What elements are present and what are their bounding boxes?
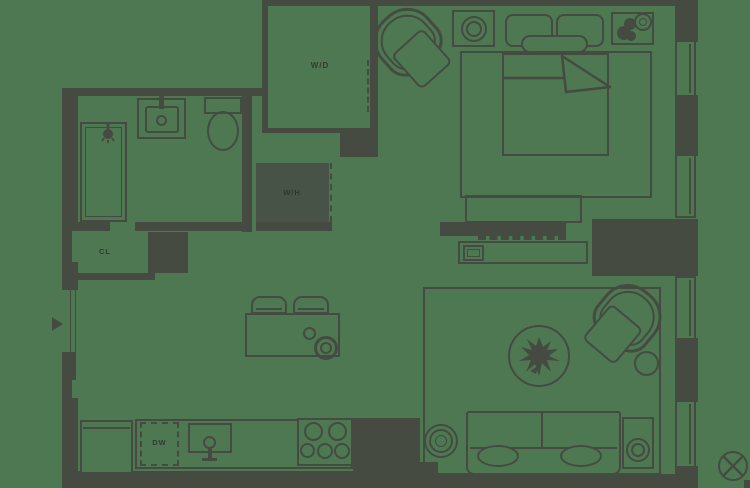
- wall: [62, 96, 78, 222]
- wall-corner-block: [340, 133, 378, 157]
- sink-faucet-icon: [159, 96, 164, 109]
- sofa-center-seam: [541, 413, 543, 447]
- table-lamp-inner-ring: [631, 443, 645, 457]
- bed-sheet-fold-icon: [500, 51, 612, 97]
- sofa-throw-pillow: [560, 445, 602, 467]
- door-opening-dashes: [367, 60, 369, 112]
- wall: [135, 222, 252, 231]
- table-lamp-inner-ring: [639, 18, 647, 26]
- window: [675, 400, 696, 468]
- dishwasher-label: DW: [142, 437, 177, 449]
- entry-arrow-icon: [52, 317, 63, 331]
- sink-drain: [156, 115, 167, 126]
- wall: [256, 222, 332, 231]
- wall: [675, 338, 698, 402]
- circled-x-lines: [718, 451, 748, 481]
- water-heater-dashed-edge: [330, 163, 332, 222]
- window: [675, 40, 696, 97]
- water-heater-label: W/H: [266, 187, 318, 199]
- window: [675, 154, 696, 218]
- burner-icon: [328, 422, 347, 441]
- wall-block: [148, 232, 188, 273]
- wall: [62, 398, 78, 474]
- tv-stand-dashes: [478, 236, 566, 240]
- faucet-base: [202, 458, 217, 461]
- wall: [62, 273, 155, 280]
- refrigerator-door-line: [83, 427, 130, 429]
- burner-icon: [317, 443, 333, 459]
- tv-icon: [440, 222, 566, 236]
- toilet-bowl: [207, 111, 239, 151]
- wall: [62, 222, 110, 231]
- wall: [62, 88, 268, 96]
- bar-stool: [293, 296, 329, 314]
- entry-door-leaf: [70, 290, 76, 352]
- burner-icon: [304, 422, 323, 441]
- floor-plan: W/D W/H CL: [0, 0, 750, 488]
- burner-icon: [300, 443, 315, 458]
- window: [675, 276, 696, 340]
- wall: [420, 474, 698, 488]
- island-sink-bowl-inner: [320, 342, 332, 354]
- burner-icon: [334, 443, 350, 459]
- shower-head-icon: [95, 122, 121, 146]
- sofa-throw-pillow: [477, 445, 519, 467]
- closet-label: CL: [85, 246, 125, 258]
- media-component-inner: [467, 249, 480, 257]
- round-side-table: [634, 351, 659, 376]
- floor-lamp-core: [435, 435, 447, 447]
- bedroom-living-divider-wall: [592, 219, 698, 276]
- wall: [62, 352, 76, 380]
- corner-mark: [744, 480, 750, 488]
- wall: [242, 88, 252, 232]
- wall: [370, 0, 698, 6]
- washer-dryer-label: W/D: [295, 60, 345, 72]
- wall: [675, 0, 698, 42]
- table-lamp-inner-ring: [466, 21, 482, 37]
- bar-stool: [251, 296, 287, 314]
- plant-star-icon: [516, 333, 562, 379]
- kitchen-side-wall-block: [353, 418, 420, 472]
- island-small-bowl: [303, 327, 316, 340]
- bedroom-bench: [465, 195, 582, 223]
- wall: [675, 95, 698, 156]
